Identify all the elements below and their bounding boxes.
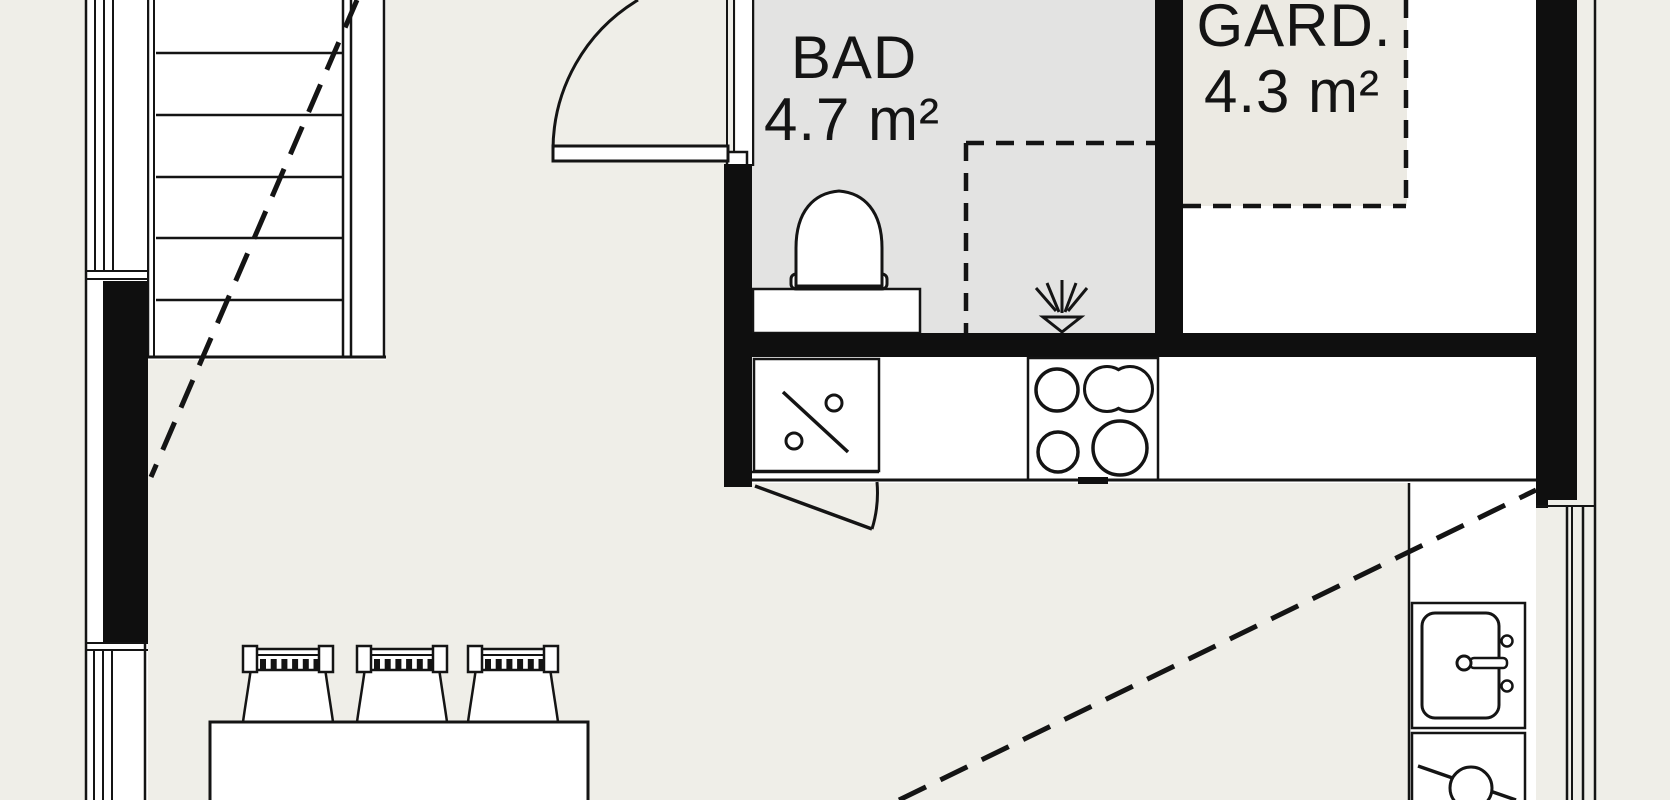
dining-table (210, 722, 588, 800)
chair (243, 646, 333, 722)
gard-room-label: GARD. (1196, 0, 1391, 59)
entrance-door-leaf (553, 146, 728, 161)
bad-room-area: 4.7 m² (764, 86, 940, 153)
right-counter (1408, 483, 1536, 800)
window-bottom-left (87, 642, 148, 800)
vanity-counter (753, 289, 920, 333)
kitchen-counter (752, 357, 1536, 484)
gard-room-area: 4.3 m² (1204, 58, 1380, 125)
wall-segment (1536, 0, 1577, 500)
wall-segment (724, 333, 1577, 357)
wall-segment (724, 164, 752, 487)
bad-room: BAD 4.7 m² (752, 0, 1155, 333)
wall-segment (1155, 0, 1183, 333)
staircase (147, 0, 386, 360)
dining-set (210, 646, 588, 800)
wall-segment (103, 281, 148, 642)
gard-room: GARD. 4.3 m² (1183, 0, 1536, 333)
floor-plan-page: GARD. 4.3 m² BAD 4.7 m² (0, 0, 1670, 800)
bad-room-label: BAD (791, 24, 917, 91)
left-exterior-wall (86, 0, 148, 800)
chair (468, 646, 558, 722)
floor-plan-drawing: GARD. 4.3 m² BAD 4.7 m² (0, 0, 1670, 800)
chair (357, 646, 447, 722)
wall-cavity (736, 0, 752, 166)
